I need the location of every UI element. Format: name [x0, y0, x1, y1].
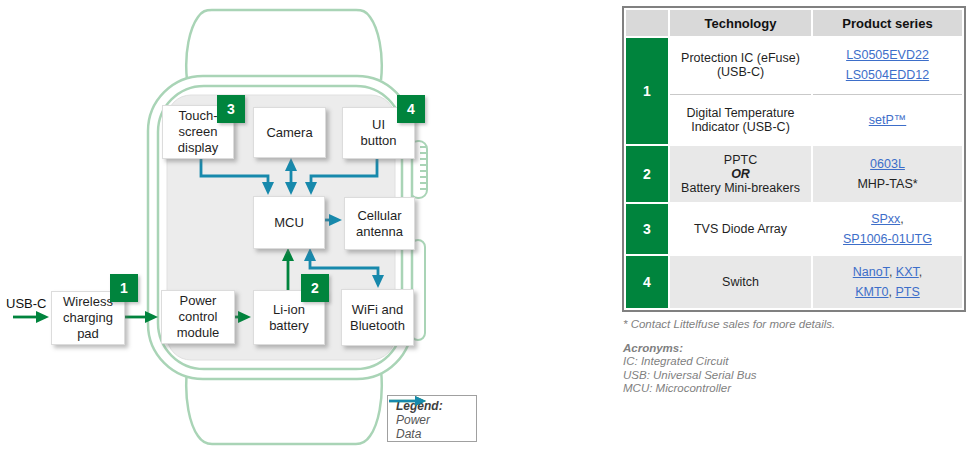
link-pts[interactable]: PTS — [895, 285, 919, 299]
header-corner-cell — [626, 10, 668, 36]
table-row-tvs-diode: 3 TVS Diode Array SPxx, SP1006-01UTG — [626, 204, 962, 254]
badge-3: 3 — [217, 95, 245, 123]
block-label: Touch- screen display — [178, 108, 218, 156]
product-mhp-tas: MHP-TAS* — [857, 177, 917, 191]
product-cell: SPxx, SP1006-01UTG — [813, 204, 962, 254]
table-row-switch: 4 Switch NanoT, KXT, KMT0, PTS — [626, 256, 962, 308]
block-label: Wireless charging pad — [63, 294, 113, 342]
product-cell: 0603L MHP-TAS* — [813, 146, 962, 202]
table-row-protection-ic: 1 Protection IC (eFuse) (USB-C) LS0505EV… — [626, 38, 962, 92]
technology-cell: TVS Diode Array — [670, 204, 811, 254]
technology-cell: Protection IC (eFuse) (USB-C) — [670, 38, 811, 92]
link-spxx[interactable]: SPxx — [871, 212, 900, 226]
block-label: Cellular antenna — [356, 208, 403, 240]
link-ls0505evd22[interactable]: LS0505EVD22 — [846, 48, 929, 62]
row-number-3: 3 — [626, 204, 668, 254]
product-cell: NanoT, KXT, KMT0, PTS — [813, 256, 962, 308]
row-number-2: 2 — [626, 146, 668, 202]
usb-c-label: USB-C — [6, 296, 46, 311]
acronym-mcu: MCU: Microcontroller — [623, 382, 963, 396]
product-cell: setP™ — [813, 94, 962, 144]
technology-cell: Digital Temperature Indicator (USB-C) — [670, 94, 811, 144]
link-sp1006-01utg[interactable]: SP1006-01UTG — [843, 232, 932, 246]
watch-strap-top — [186, 10, 382, 80]
row-number-4: 4 — [626, 256, 668, 308]
table-row-temp-indicator: Digital Temperature Indicator (USB-C) se… — [626, 94, 962, 144]
legend: Legend: Power Data — [387, 395, 477, 442]
badge-4: 4 — [397, 95, 425, 123]
acronyms-title: Acronyms: — [623, 342, 963, 356]
link-kmt0[interactable]: KMT0 — [855, 285, 888, 299]
link-kxt[interactable]: KXT — [896, 265, 919, 279]
table-row-pptc: 2 PPTC OR Battery Mini-breakers 0603L MH… — [626, 146, 962, 202]
header-technology: Technology — [670, 10, 811, 36]
block-camera: Camera — [253, 107, 326, 158]
header-product-series: Product series — [813, 10, 962, 36]
block-power-control-module: Power control module — [161, 290, 235, 344]
block-label: Power control module — [177, 293, 220, 341]
block-label: WiFi and Bluetooth — [350, 302, 405, 334]
technology-cell: PPTC OR Battery Mini-breakers — [670, 146, 811, 202]
block-wifi-bluetooth: WiFi and Bluetooth — [341, 289, 414, 346]
block-label: UI button — [360, 117, 396, 149]
data-arrow-icon — [388, 396, 430, 406]
badge-2: 2 — [301, 274, 329, 302]
block-cellular-antenna: Cellular antenna — [344, 197, 415, 250]
block-label: Camera — [266, 125, 312, 141]
product-cell: LS0505EVD22 LS0504EDD12 — [813, 38, 962, 92]
legend-power-label: Power — [396, 413, 430, 427]
acronym-usb: USB: Universal Serial Bus — [623, 369, 963, 383]
badge-1: 1 — [110, 274, 138, 302]
block-label: MCU — [274, 215, 304, 231]
link-setp[interactable]: setP™ — [869, 113, 907, 127]
footnotes: * Contact Littelfuse sales for more deta… — [623, 318, 963, 396]
block-label: Li-ion battery — [269, 302, 309, 334]
link-0603l[interactable]: 0603L — [870, 157, 905, 171]
footnote-contact: * Contact Littelfuse sales for more deta… — [623, 318, 963, 332]
watch-strap-bottom — [186, 370, 382, 444]
link-ls0504edd12[interactable]: LS0504EDD12 — [846, 68, 929, 82]
technology-cell: Switch — [670, 256, 811, 308]
product-table: Technology Product series 1 Protection I… — [622, 6, 966, 312]
legend-data-label: Data — [396, 427, 421, 441]
smartwatch-diagram: USB-C Touch- screen display Camera UI bu… — [0, 0, 620, 455]
screenshot-root: USB-C Touch- screen display Camera UI bu… — [0, 0, 968, 455]
acronym-ic: IC: Integrated Circuit — [623, 355, 963, 369]
block-mcu: MCU — [253, 196, 325, 249]
table-header-row: Technology Product series — [626, 10, 962, 36]
link-nanot[interactable]: NanoT — [853, 265, 889, 279]
row-number-1: 1 — [626, 38, 668, 144]
